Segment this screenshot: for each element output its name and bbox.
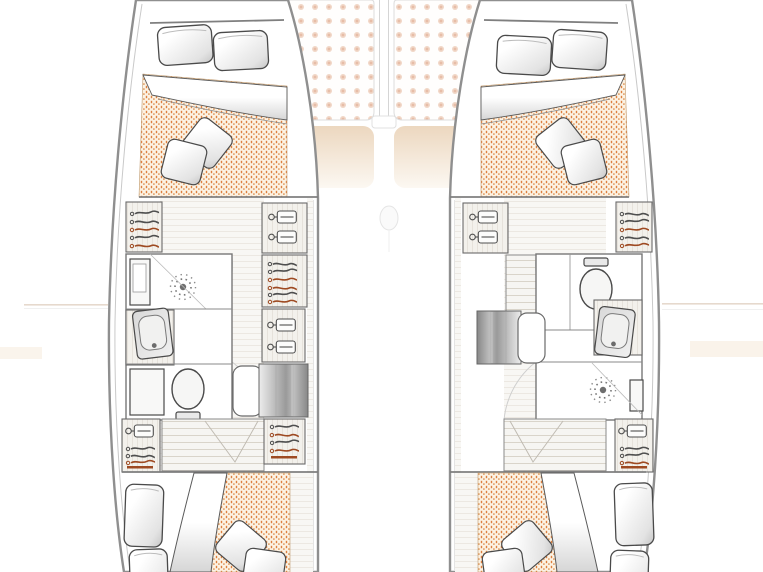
pillow bbox=[551, 29, 608, 71]
hanger-wardrobe bbox=[616, 202, 652, 252]
pillow bbox=[614, 483, 654, 546]
pillow bbox=[609, 550, 649, 572]
washbasin-icon bbox=[132, 308, 174, 360]
floorplan-stage bbox=[0, 0, 763, 572]
walkway bbox=[456, 473, 478, 572]
right-hull bbox=[450, 0, 659, 572]
hanger-wardrobe bbox=[122, 419, 160, 472]
pillow bbox=[157, 24, 214, 66]
hanger-wardrobe bbox=[126, 202, 162, 252]
washbasin-area bbox=[126, 308, 174, 365]
pillow bbox=[124, 484, 164, 547]
right-aft-cabin bbox=[456, 473, 654, 572]
hanger-wardrobe bbox=[264, 419, 305, 464]
shelf-locker bbox=[463, 203, 508, 253]
left-aft-cabin bbox=[124, 473, 313, 572]
companionway-steps bbox=[162, 419, 264, 471]
walkway bbox=[290, 473, 313, 572]
hanger-wardrobe bbox=[615, 419, 653, 472]
catamaran-floorplan bbox=[0, 0, 763, 572]
pillow bbox=[213, 30, 269, 71]
mast-base bbox=[380, 206, 398, 252]
washbasin-area bbox=[594, 300, 642, 358]
shelf-locker bbox=[262, 203, 307, 253]
companionway-steps bbox=[504, 419, 606, 471]
hanger-wardrobe bbox=[262, 255, 307, 307]
throw-cushion bbox=[560, 138, 608, 186]
throw-cushion bbox=[160, 138, 208, 186]
toilet-icon bbox=[172, 369, 204, 420]
seat bbox=[233, 364, 308, 417]
pillow bbox=[129, 549, 169, 572]
pillow bbox=[496, 35, 552, 76]
shelf-locker bbox=[262, 309, 305, 362]
left-hull bbox=[109, 0, 318, 572]
washbasin-icon bbox=[594, 306, 636, 358]
deck-hatch bbox=[372, 116, 396, 128]
seat bbox=[477, 311, 545, 364]
